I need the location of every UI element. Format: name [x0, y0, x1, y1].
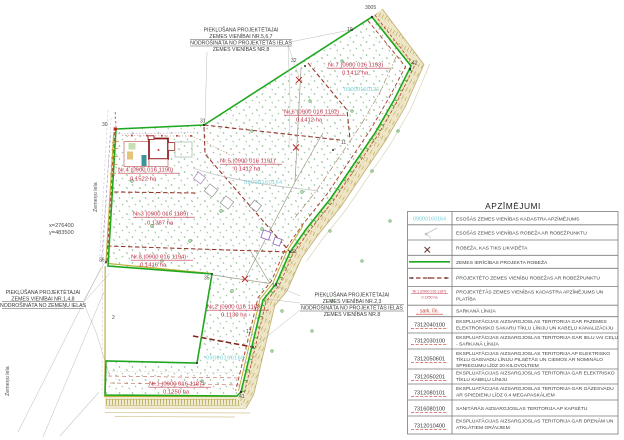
svg-text:09000160164: 09000160164 — [244, 180, 283, 186]
svg-text:7312040100: 7312040100 — [414, 323, 445, 329]
svg-text:30: 30 — [102, 122, 108, 128]
svg-text:7312010400: 7312010400 — [414, 424, 445, 430]
svg-text:Nr.6 (0900 016 1192): Nr.6 (0900 016 1192) — [284, 110, 339, 116]
svg-text:Nr.7 (0900 016 1193): Nr.7 (0900 016 1193) — [328, 63, 383, 69]
svg-text:7312050601: 7312050601 — [414, 357, 445, 363]
svg-text:14: 14 — [272, 283, 278, 289]
svg-text:ATKLĀTIEM GRĀVJIEM: ATKLĀTIEM GRĀVJIEM — [456, 424, 510, 431]
svg-text:SPRIEGUMU LĪDZ 20 KILOVOLTIEM: SPRIEGUMU LĪDZ 20 KILOVOLTIEM — [456, 362, 539, 369]
svg-text:7312050201: 7312050201 — [414, 375, 445, 381]
svg-text:EKSPLUATĀCIJAS AIZSARGJOSLAS T: EKSPLUATĀCIJAS AIZSARGJOSLAS TERITORIJA … — [456, 418, 614, 425]
svg-text:2: 2 — [112, 315, 115, 321]
svg-text:EKSPLUATĀCIJAS AIZSARGJOSLAS T: EKSPLUATĀCIJAS AIZSARGJOSLAS TERITORIJA … — [456, 334, 619, 341]
svg-text:TĪKLU GAISVADU LĪNIJU PILSĒTĀS: TĪKLU GAISVADU LĪNIJU PILSĒTĀS UN CIEMOS… — [456, 356, 603, 363]
svg-text:09000160121: 09000160121 — [344, 87, 379, 93]
svg-text:09000160168: 09000160168 — [206, 356, 245, 362]
svg-text:0.1522 ha: 0.1522 ha — [130, 177, 157, 183]
svg-text:Nr.1 (0900 016 1187): Nr.1 (0900 016 1187) — [413, 290, 447, 294]
svg-text:41: 41 — [239, 394, 245, 400]
svg-text:EKSPLUATĀCIJAS AIZSARGJOSLAS T: EKSPLUATĀCIJAS AIZSARGJOSLAS TERITORIJA … — [456, 370, 615, 377]
svg-text:y=483500: y=483500 — [49, 230, 74, 236]
svg-text:ZEMES VIENĪBAS NR.8: ZEMES VIENĪBAS NR.8 — [324, 311, 381, 318]
svg-text:33: 33 — [291, 249, 297, 255]
svg-text:ZEMES VIENĪBAI NR.5,6,7: ZEMES VIENĪBAI NR.5,6,7 — [209, 33, 272, 40]
svg-text:ELEKTRONISKO SAKARU TĪKLU LĪNI: ELEKTRONISKO SAKARU TĪKLU LĪNIJU UN KABE… — [456, 325, 614, 332]
svg-text:Nr.5 (0900 016 1191): Nr.5 (0900 016 1191) — [220, 159, 275, 165]
svg-text:32: 32 — [291, 58, 297, 64]
svg-text:ESOŠĀS ZEMES VIENĪBAS KADASTRA: ESOŠĀS ZEMES VIENĪBAS KADASTRA APZĪMĒJUM… — [456, 216, 580, 223]
svg-text:sark. līn.: sark. līn. — [420, 309, 439, 315]
svg-text:12: 12 — [246, 329, 252, 335]
svg-text:NODROŠINĀTA NO ZEMEŅU IELAS: NODROŠINĀTA NO ZEMEŅU IELAS — [0, 302, 87, 309]
svg-text:PIEKĻŪŠANA PROJEKTĒTAJAI: PIEKĻŪŠANA PROJEKTĒTAJAI — [204, 27, 279, 34]
svg-text:Nr.8 (0900 016 1194): Nr.8 (0900 016 1194) — [131, 255, 186, 261]
svg-text:AR SPIEDIENU LĪDZ 0.4 MEGAPASK: AR SPIEDIENU LĪDZ 0.4 MEGAPASKĀLIEM — [456, 392, 555, 399]
svg-text:0.1412 ha: 0.1412 ha — [342, 71, 369, 77]
svg-text:PIEKĻŪŠANA PROJEKTĒTAJAI: PIEKĻŪŠANA PROJEKTĒTAJAI — [6, 289, 81, 296]
svg-text:NODROŠINĀTA NO PROJEKTĒTĀS IEL: NODROŠINĀTA NO PROJEKTĒTĀS IELAS — [301, 305, 403, 312]
svg-text:Nr.3 (0900 016 1189): Nr.3 (0900 016 1189) — [133, 212, 188, 218]
svg-text:Nr.4 (0900 016 1190): Nr.4 (0900 016 1190) — [118, 168, 173, 174]
svg-text:PLATĪBA: PLATĪBA — [456, 296, 477, 303]
svg-text:SANITĀRĀS AIZSARGJOSLAS TERITO: SANITĀRĀS AIZSARGJOSLAS TERITORIJA AP KA… — [456, 405, 588, 412]
svg-text:PROJEKTĒTĀS ZEMES VIENĪBAS KAD: PROJEKTĒTĀS ZEMES VIENĪBAS KADASTRA APZĪ… — [456, 289, 604, 296]
svg-text:0.1250 ha: 0.1250 ha — [163, 390, 190, 396]
svg-text:ZEMES VIENĪBAS NR.8: ZEMES VIENĪBAS NR.8 — [213, 46, 270, 53]
svg-text:7312030100: 7312030100 — [414, 339, 445, 345]
svg-text:- SARKANĀ LĪNIJA: - SARKANĀ LĪNIJA — [456, 341, 500, 348]
svg-text:0.1416 ha: 0.1416 ha — [140, 263, 167, 269]
svg-text:09000160164: 09000160164 — [413, 217, 446, 223]
svg-text:SARKANĀ LĪNIJA: SARKANĀ LĪNIJA — [456, 308, 496, 315]
svg-text:EKSPLUATĀCIJAS AIZSARGJOSLAS T: EKSPLUATĀCIJAS AIZSARGJOSLAS TERITORIJA … — [456, 350, 610, 357]
svg-text:35: 35 — [204, 276, 210, 282]
svg-text:0.1250 ha: 0.1250 ha — [422, 296, 438, 300]
svg-text:7312080101: 7312080101 — [414, 391, 445, 397]
svg-text:Nr.2 (0900 016 1188): Nr.2 (0900 016 1188) — [207, 305, 262, 311]
svg-text:36: 36 — [99, 258, 105, 264]
svg-text:42: 42 — [412, 61, 418, 67]
svg-text:0.1412 ha: 0.1412 ha — [296, 118, 323, 124]
svg-text:x=276400: x=276400 — [49, 223, 74, 229]
svg-text:NODROŠINĀTA NO PROJEKTĒTĀS IEL: NODROŠINĀTA NO PROJEKTĒTĀS IELAS — [190, 40, 292, 47]
svg-text:0.1387 ha: 0.1387 ha — [147, 221, 174, 227]
svg-text:Zemeņu iela: Zemeņu iela — [93, 182, 99, 212]
svg-text:11: 11 — [341, 140, 346, 146]
svg-text:3005: 3005 — [365, 5, 376, 11]
svg-text:ZEMES VIENĪBAI NR.2,3: ZEMES VIENĪBAI NR.2,3 — [323, 298, 382, 305]
svg-text:TĪKLU KABEĻU LĪNIJU: TĪKLU KABEĻU LĪNIJU — [456, 376, 508, 383]
svg-text:0.1412 ha: 0.1412 ha — [234, 167, 261, 173]
svg-text:PIEKĻŪŠANA PROJEKTĒTAJAI: PIEKĻŪŠANA PROJEKTĒTAJAI — [315, 292, 390, 299]
svg-text:EKSPLUATĀCIJAS AIZSARGJOSLAS T: EKSPLUATĀCIJAS AIZSARGJOSLAS TERITORIJA … — [456, 385, 614, 392]
svg-text:7316080100: 7316080100 — [414, 407, 445, 413]
svg-text:EKSPLUATĀCIJAS AIZSARGJOSLAS T: EKSPLUATĀCIJAS AIZSARGJOSLAS TERITORIJA … — [456, 318, 608, 325]
svg-text:Zemeņu iela: Zemeņu iela — [5, 366, 11, 396]
svg-text:0.1130 ha: 0.1130 ha — [221, 313, 247, 319]
svg-text:Nr.1 (0900 016 1187): Nr.1 (0900 016 1187) — [149, 382, 204, 388]
svg-text:APZĪMĒJUMI: APZĪMĒJUMI — [485, 201, 541, 211]
